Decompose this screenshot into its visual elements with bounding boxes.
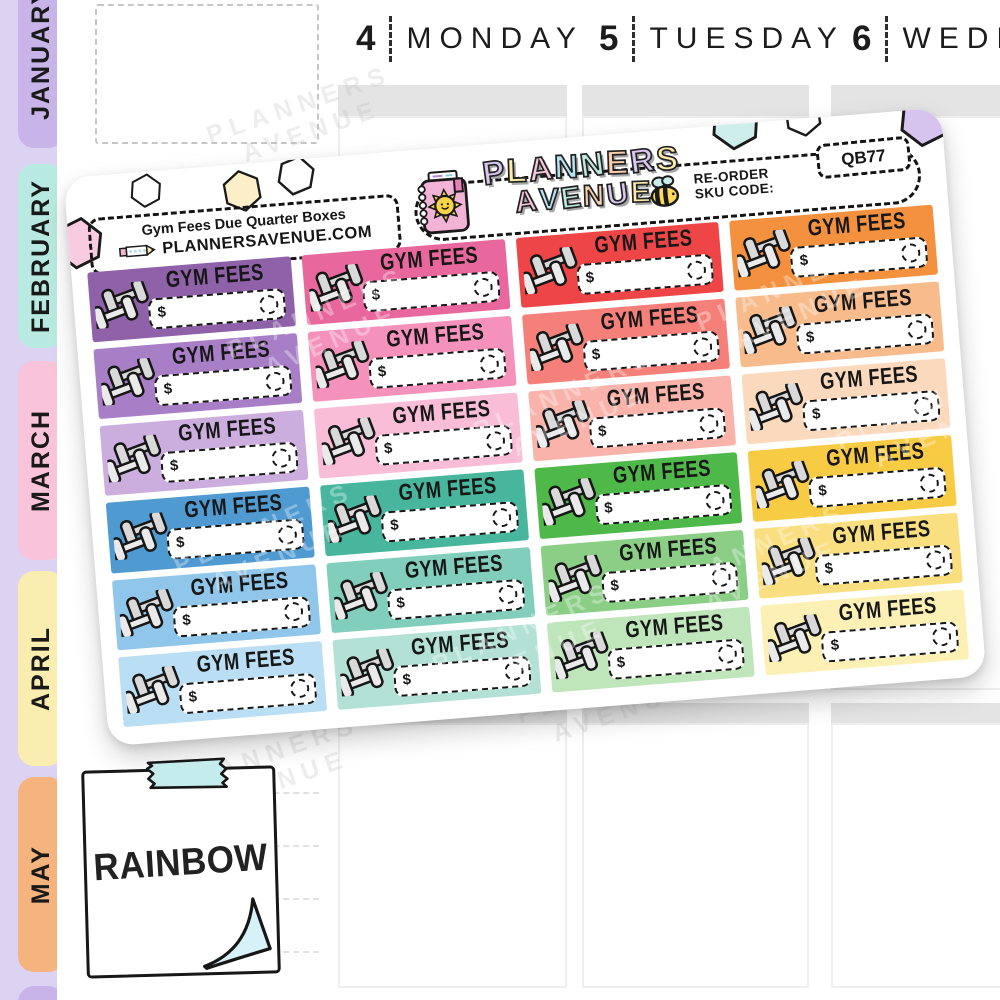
gym-fees-box-r2c4: GYM FEES$: [736, 282, 945, 368]
currency-symbol: $: [383, 440, 393, 458]
dashed-circle-icon: [258, 294, 278, 314]
gym-fees-box-r5c4: GYM FEES$: [754, 512, 963, 598]
dumbbell-icon: [118, 588, 177, 636]
gym-fees-box-r3c3: GYM FEES$: [528, 376, 737, 462]
currency-symbol: $: [616, 654, 626, 672]
dashed-circle-icon: [497, 584, 517, 604]
dumbbell-icon: [93, 281, 152, 329]
dumbbell-icon: [754, 460, 813, 508]
sticky-note: RAINBOW: [81, 765, 281, 978]
currency-symbol: $: [163, 380, 173, 398]
dashed-circle-icon: [913, 396, 933, 416]
currency-symbol: $: [176, 534, 186, 552]
day-section-box: [582, 723, 809, 988]
dashed-circle-icon: [931, 627, 951, 647]
currency-symbol: $: [188, 688, 198, 706]
currency-symbol: $: [157, 303, 167, 321]
pencil-icon: [118, 243, 157, 259]
tab-january-label: JANUARY: [27, 0, 56, 120]
dashed-circle-icon: [265, 371, 285, 391]
gym-fees-box-r6c2: GYM FEES$: [332, 624, 541, 710]
tab-april-label: APRIL: [27, 626, 56, 711]
currency-symbol: $: [402, 671, 412, 689]
currency-symbol: $: [585, 269, 595, 287]
dashed-circle-icon: [271, 448, 291, 468]
dumbbell-icon: [742, 306, 801, 354]
dashed-circle-icon: [277, 525, 297, 545]
amount-field: $: [380, 501, 519, 543]
currency-symbol: $: [610, 577, 620, 595]
gym-fees-box-r5c3: GYM FEES$: [540, 529, 749, 615]
dashed-circle-icon: [907, 319, 927, 339]
gym-fees-box-r5c2: GYM FEES$: [326, 547, 535, 633]
tab-may-label: MAY: [27, 845, 56, 904]
page-curl-icon: [195, 892, 283, 979]
dumbbell-icon: [552, 631, 611, 679]
note-text: RAINBOW: [86, 836, 276, 891]
sticker-grid: GYM FEES$GYM FEES$GYM FEES$GYM FEES$GYM …: [87, 205, 969, 728]
dashed-circle-icon: [503, 661, 523, 681]
dashed-circle-icon: [283, 602, 303, 622]
gym-fees-box-r1c1: GYM FEES$: [87, 256, 296, 342]
currency-symbol: $: [390, 517, 400, 535]
dashed-circle-icon: [699, 413, 719, 433]
currency-symbol: $: [824, 559, 834, 577]
washi-tape-icon: [138, 756, 235, 796]
currency-symbol: $: [812, 406, 822, 424]
amount-field: $: [166, 519, 305, 561]
dumbbell-icon: [760, 537, 819, 585]
dumbbell-icon: [748, 383, 807, 431]
dashed-circle-icon: [491, 507, 511, 527]
dashed-circle-icon: [289, 679, 309, 699]
dashed-circle-icon: [693, 336, 713, 356]
gym-fees-box-r4c1: GYM FEES$: [106, 487, 315, 573]
dumbbell-icon: [326, 494, 385, 542]
gym-fees-box-r5c1: GYM FEES$: [112, 564, 321, 650]
currency-symbol: $: [169, 457, 179, 475]
dumbbell-icon: [528, 323, 587, 371]
dumbbell-icon: [766, 614, 825, 662]
currency-symbol: $: [396, 594, 406, 612]
day-section-box: [831, 723, 1000, 988]
amount-field: $: [808, 467, 947, 509]
dumbbell-icon: [99, 358, 158, 406]
sku-code: QB77: [840, 146, 886, 169]
dashed-circle-icon: [717, 644, 737, 664]
dumbbell-icon: [313, 340, 372, 388]
currency-symbol: $: [371, 286, 381, 304]
gym-fees-box-r3c4: GYM FEES$: [742, 358, 951, 444]
gym-fees-box-r2c2: GYM FEES$: [307, 316, 516, 402]
dumbbell-icon: [320, 417, 379, 465]
dumbbell-icon: [521, 246, 580, 294]
gym-fees-box-r6c4: GYM FEES$: [760, 589, 969, 675]
dashed-circle-icon: [925, 550, 945, 570]
dumbbell-icon: [112, 511, 171, 559]
currency-symbol: $: [182, 611, 192, 629]
dashed-circle-icon: [919, 473, 939, 493]
gym-fees-box-r6c3: GYM FEES$: [546, 606, 755, 692]
dumbbell-icon: [124, 665, 183, 713]
tab-march-label: MARCH: [27, 409, 56, 512]
day-section-bar: [831, 703, 1000, 723]
dashed-circle-icon: [485, 431, 505, 451]
currency-symbol: $: [799, 252, 809, 270]
currency-symbol: $: [377, 363, 387, 381]
currency-symbol: $: [805, 329, 815, 347]
gym-fees-box-r1c4: GYM FEES$: [729, 205, 938, 291]
gym-fees-box-r1c2: GYM FEES$: [301, 239, 510, 325]
dumbbell-icon: [332, 571, 391, 619]
dashed-circle-icon: [479, 354, 499, 374]
amount-field: $: [594, 484, 733, 526]
dashed-circle-icon: [705, 490, 725, 510]
currency-symbol: $: [604, 500, 614, 518]
hexagon-white-icon: [275, 154, 318, 197]
gym-fees-box-r1c3: GYM FEES$: [515, 222, 724, 308]
day-section-bar: [582, 85, 809, 116]
dumbbell-icon: [546, 554, 605, 602]
dumbbell-icon: [735, 229, 794, 277]
gym-fees-box-r3c1: GYM FEES$: [100, 410, 309, 496]
currency-symbol: $: [818, 483, 828, 501]
tab-february-label: FEBRUARY: [27, 179, 56, 333]
hexagon-white-icon: [128, 172, 165, 209]
currency-symbol: $: [597, 423, 607, 441]
product-photo: JANUARY FEBRUARY MARCH APRIL MAY 4 MONDA…: [0, 0, 1000, 1000]
currency-symbol: $: [830, 636, 840, 654]
dumbbell-icon: [106, 435, 165, 483]
gym-fees-box-r2c3: GYM FEES$: [522, 299, 731, 385]
gym-fees-box-r4c3: GYM FEES$: [534, 453, 743, 539]
dashed-circle-icon: [472, 277, 492, 297]
gym-fees-box-r4c4: GYM FEES$: [748, 435, 957, 521]
dashed-circle-icon: [711, 567, 731, 587]
sticker-sheet: Gym Fees Due Quarter Boxes PLANNERSAVENU…: [64, 108, 987, 747]
currency-symbol: $: [591, 346, 601, 364]
dumbbell-icon: [307, 264, 366, 312]
dashed-circle-icon: [901, 242, 921, 262]
dumbbell-icon: [338, 648, 397, 696]
dumbbell-icon: [540, 477, 599, 525]
gym-fees-box-r2c1: GYM FEES$: [93, 333, 302, 419]
dashed-circle-icon: [686, 259, 706, 279]
gym-fees-box-r6c1: GYM FEES$: [118, 641, 327, 727]
day-section-box: [338, 723, 567, 988]
gym-fees-box-r4c2: GYM FEES$: [320, 470, 529, 556]
gym-fees-box-r3c2: GYM FEES$: [314, 393, 523, 479]
dumbbell-icon: [534, 400, 593, 448]
